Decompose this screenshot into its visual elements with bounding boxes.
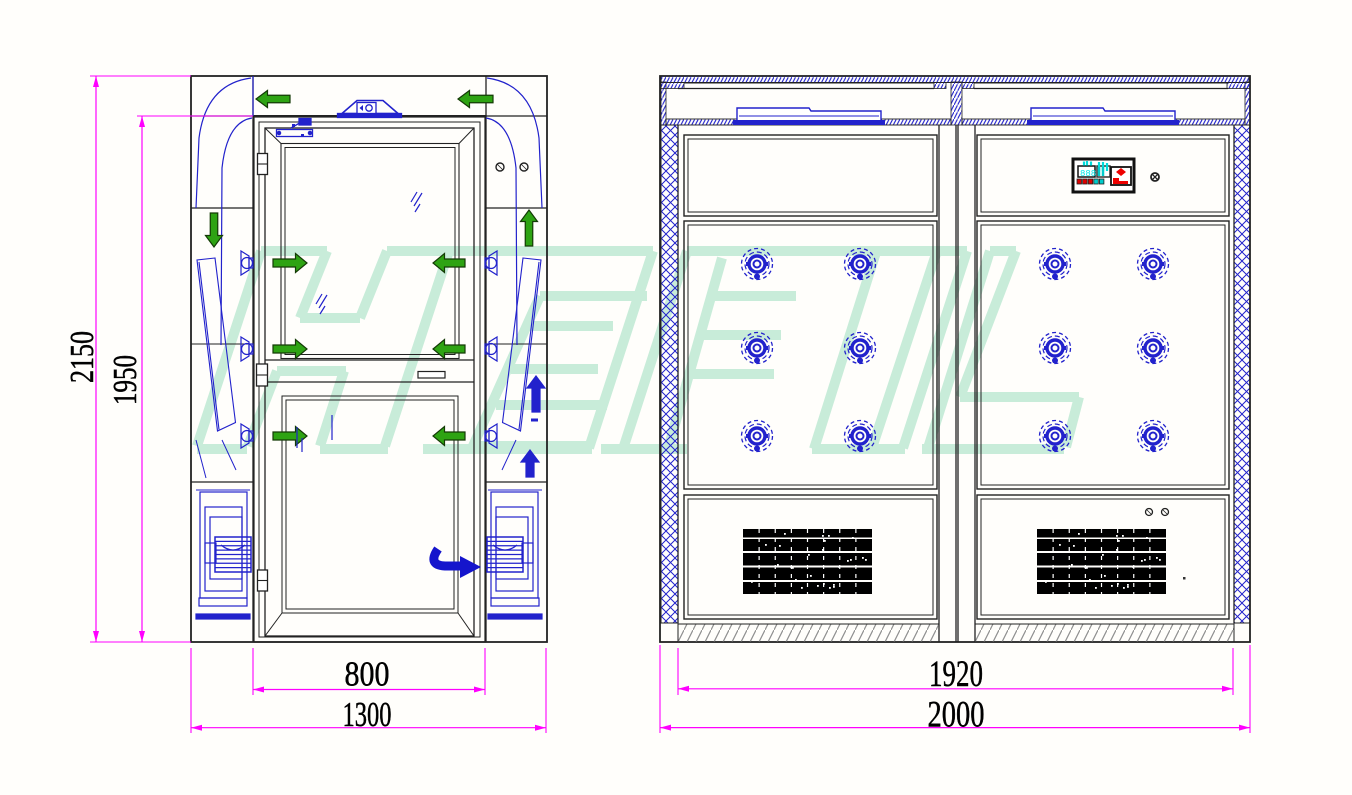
svg-text:1950: 1950 [107, 355, 144, 405]
svg-text:1920: 1920 [929, 654, 983, 695]
svg-text:800: 800 [345, 655, 390, 694]
svg-text:2150: 2150 [64, 331, 101, 383]
svg-text:888: 888 [1080, 169, 1096, 179]
svg-text:1300: 1300 [343, 695, 392, 734]
svg-text:2000: 2000 [928, 695, 985, 736]
